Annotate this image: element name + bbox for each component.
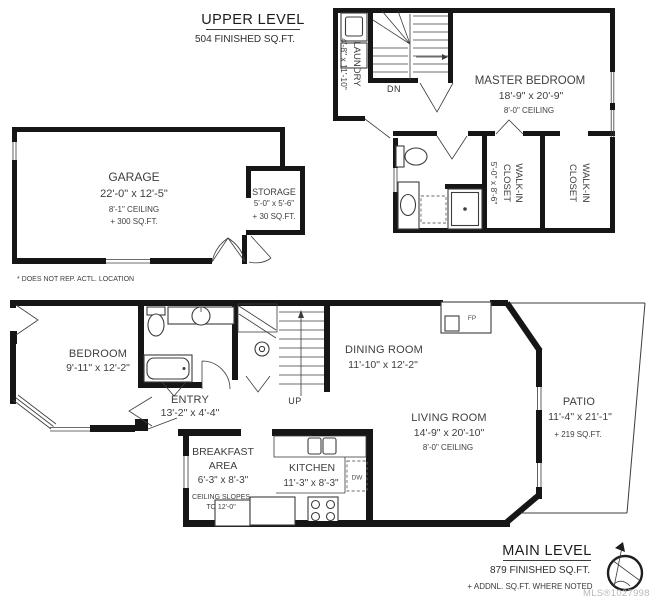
upper-stair-label: DN xyxy=(387,84,401,94)
floor-plan: UPPER LEVEL 504 FINISHED SQ.FT. DN xyxy=(0,0,652,600)
upper-level-subtitle: 504 FINISHED SQ.FT. xyxy=(195,34,295,45)
floor-plan-canvas: UPPER LEVEL 504 FINISHED SQ.FT. DN xyxy=(0,0,652,600)
bedroom-name: BEDROOM xyxy=(69,348,127,360)
main-level-note: + ADDNL. SQ.FT. WHERE NOTED xyxy=(467,582,592,591)
room-label-entry: ENTRY 13'-2" x 4'-4" xyxy=(161,394,220,419)
breakfast-note-line1: CEILING SLOPES xyxy=(192,494,250,501)
laundry-dims: 4'-8" x 11'-10" xyxy=(339,38,349,90)
breakfast-note-line2: TO 12'-0" xyxy=(206,504,236,511)
stair-up-arrow-icon xyxy=(298,310,304,318)
laundry-name: LAUNDRY xyxy=(351,41,362,87)
closet-door-icon xyxy=(496,120,523,134)
master-bedroom-dims: 18'-9" x 20'-9" xyxy=(499,90,564,102)
room-label-bedroom: BEDROOM 9'-11" x 12'-2" xyxy=(66,348,130,374)
closet2-name-line2: CLOSET xyxy=(567,164,578,202)
living-name: LIVING ROOM xyxy=(411,412,487,424)
master-bedroom-ceiling: 8'-0" CEILING xyxy=(504,106,554,115)
closet2-name-line1: WALK-IN xyxy=(580,163,591,202)
living-room-bay-wall-bottom xyxy=(507,495,539,522)
entry-dims: 13'-2" x 4'-4" xyxy=(161,407,220,419)
room-label-walk-in-closet-1: WALK-IN CLOSET 5'-0" x 8'-6" xyxy=(489,162,524,205)
garage-name: GARAGE xyxy=(108,170,159,184)
closet1-dims: 5'-0" x 8'-6" xyxy=(489,162,499,205)
garage-bottom-window xyxy=(106,258,150,264)
patio-dims: 11'-4" x 21'-1" xyxy=(548,411,612,423)
upper-level-title-block: UPPER LEVEL 504 FINISHED SQ.FT. xyxy=(195,12,305,45)
mls-watermark: MLS®1027998 xyxy=(583,588,650,599)
dining-dims: 11'-10" x 12'-2" xyxy=(348,359,418,371)
upper-floor-plan: DN LAUNDRY 4'-8" x 11'-10 xyxy=(333,8,615,233)
upper-bath-door-icon xyxy=(437,136,467,159)
room-label-master-bedroom: MASTER BEDROOM 18'-9" x 20'-9" 8'-0" CEI… xyxy=(475,75,586,115)
room-label-patio: PATIO 11'-4" x 21'-1" + 219 SQ.FT. xyxy=(548,396,612,439)
laundry-door-icon xyxy=(365,119,390,138)
garage-left-window xyxy=(13,142,16,160)
bedroom-dims: 9'-11" x 12'-2" xyxy=(66,362,130,374)
understair-closet-icon xyxy=(238,304,277,338)
upper-vanity-sink-icon xyxy=(398,182,419,229)
main-staircase-icon xyxy=(279,310,324,396)
upper-bath-window xyxy=(393,168,398,192)
storage-dims: 5'-0" x 5'-6" xyxy=(254,199,294,208)
breakfast-window xyxy=(184,456,188,488)
master-bedroom-name: MASTER BEDROOM xyxy=(475,75,586,87)
room-label-dining-room: DINING ROOM 11'-10" x 12'-2" xyxy=(345,344,423,371)
room-label-garage: GARAGE 22'-0" x 12'-5" 8'-1" CEILING + 3… xyxy=(100,170,168,226)
patio-extra: + 219 SQ.FT. xyxy=(554,430,601,439)
garage-dims: 22'-0" x 12'-5" xyxy=(100,188,168,200)
kitchen-name: KITCHEN xyxy=(289,462,335,474)
main-level-title-block: MAIN LEVEL 879 FINISHED SQ.FT. + ADDNL. … xyxy=(467,543,592,591)
front-door-icon xyxy=(148,418,177,429)
room-label-storage: STORAGE 5'-0" x 5'-6" + 30 SQ.FT. xyxy=(252,187,296,221)
living-ceiling: 8'-0" CEILING xyxy=(423,443,473,452)
room-label-kitchen: KITCHEN 11'-3" x 8'-3" xyxy=(283,462,339,489)
main-floor-plan: FP xyxy=(10,300,645,527)
powder-sink-icon xyxy=(255,342,269,356)
compass-icon xyxy=(608,542,642,590)
master-bedroom-door-icon xyxy=(420,83,453,112)
garage-ceiling: 8'-1" CEILING xyxy=(109,205,159,214)
stove-icon xyxy=(306,497,342,527)
garage-plan: GARAGE 22'-0" x 12'-5" 8'-1" CEILING + 3… xyxy=(12,127,305,283)
breakfast-name-line1: BREAKFAST xyxy=(192,446,254,458)
main-bath-door-icon xyxy=(202,361,230,389)
garage-footnote: * DOES NOT REP. ACTL. LOCATION xyxy=(17,276,134,283)
dishwasher-label: DW xyxy=(352,475,364,482)
entry-name: ENTRY xyxy=(171,394,210,406)
kitchen-island-icon xyxy=(215,497,295,526)
breakfast-dims: 6'-3" x 8'-3" xyxy=(198,475,249,486)
main-stair-label: UP xyxy=(288,396,302,406)
bedroom-bay-window xyxy=(13,395,90,431)
dishwasher-icon: DW xyxy=(347,461,367,491)
powder-room-door-icon xyxy=(246,376,270,392)
living-dims: 14'-9" x 20'-10" xyxy=(414,427,485,439)
main-vanity-sink-icon xyxy=(168,307,234,325)
fireplace-label: FP xyxy=(468,315,476,322)
compass-north-arrow-icon xyxy=(615,542,625,552)
shower-icon xyxy=(448,189,482,229)
bath-floor-mat xyxy=(421,196,446,223)
main-level-subtitle: 879 FINISHED SQ.FT. xyxy=(490,565,590,576)
stair-arrow-icon xyxy=(442,54,448,60)
kitchen-dims: 11'-3" x 8'-3" xyxy=(283,478,339,489)
bathtub-icon xyxy=(144,355,192,382)
washer-icon xyxy=(341,13,367,41)
storage-extra: + 30 SQ.FT. xyxy=(253,212,296,221)
garage-door-icon xyxy=(212,238,245,262)
upper-toilet-icon xyxy=(396,146,427,167)
closet1-name-line2: CLOSET xyxy=(501,164,512,202)
breakfast-name-line2: AREA xyxy=(209,460,238,472)
storage-name: STORAGE xyxy=(252,187,296,197)
closet1-name-line1: WALK-IN xyxy=(513,163,524,202)
room-label-walk-in-closet-2: WALK-IN CLOSET xyxy=(567,163,591,202)
fireplace-icon: FP xyxy=(441,302,491,333)
room-label-living-room: LIVING ROOM 14'-9" x 20'-10" 8'-0" CEILI… xyxy=(411,412,487,452)
garage-extra: + 300 SQ.FT. xyxy=(110,217,157,226)
upper-level-title: UPPER LEVEL xyxy=(201,12,305,28)
main-level-title: MAIN LEVEL xyxy=(502,543,591,559)
upper-staircase-icon xyxy=(373,11,448,80)
dining-name: DINING ROOM xyxy=(345,344,423,356)
storage-door-icon xyxy=(249,236,271,263)
bedroom-entry-door-icon xyxy=(16,305,38,335)
patio-name: PATIO xyxy=(563,396,596,408)
main-toilet-icon xyxy=(147,307,165,336)
living-room-bay-wall-top xyxy=(507,303,540,351)
